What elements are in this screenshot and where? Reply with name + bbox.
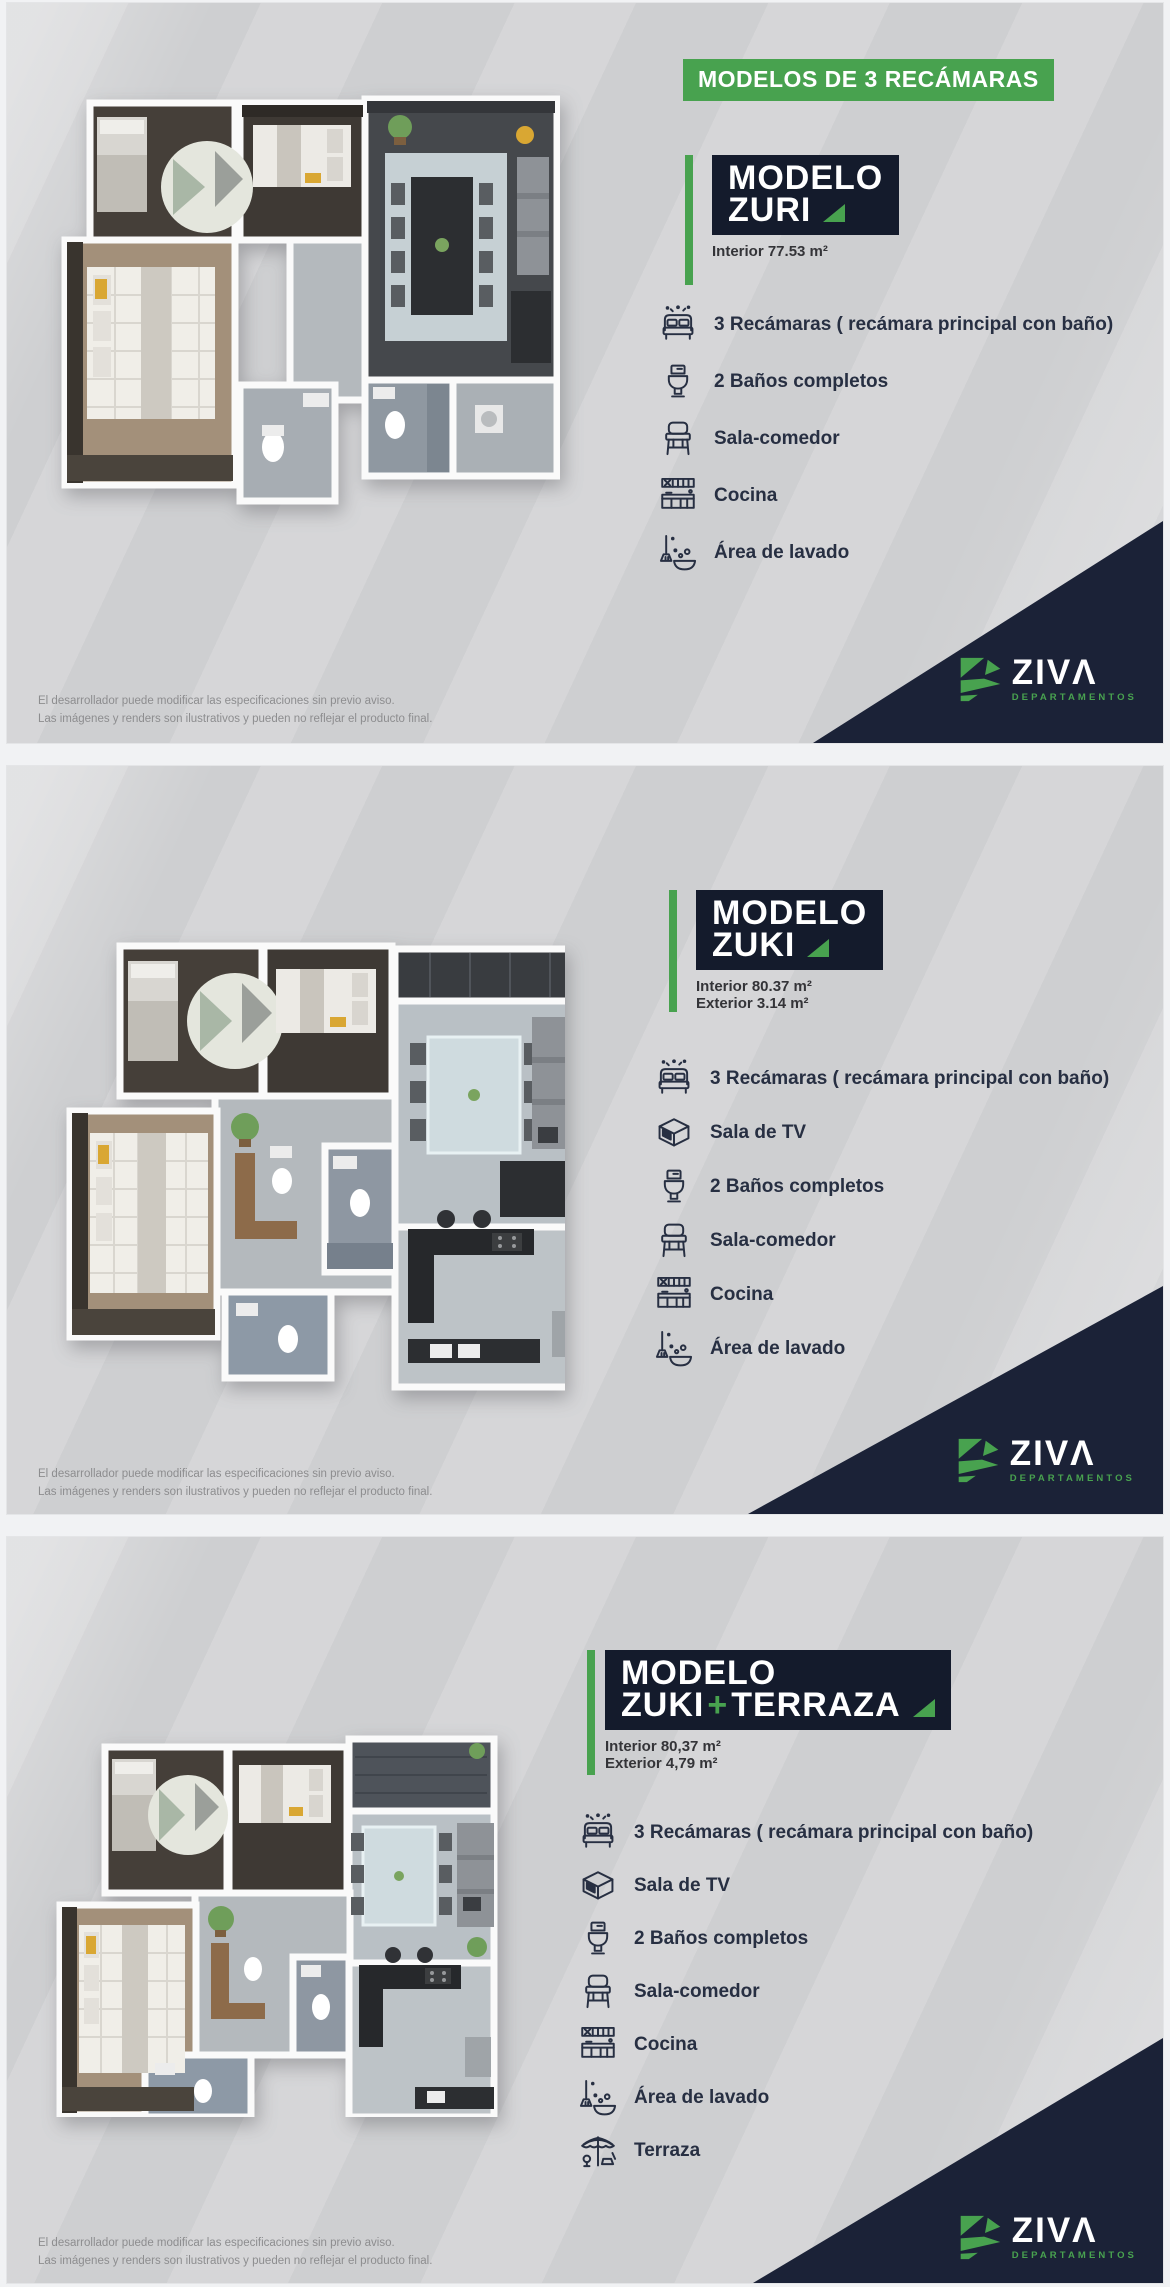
feature-item: Cocina [577,2025,1033,2065]
laundry-icon [657,532,699,574]
model-title-prefix: MODELO [728,162,883,194]
ziva-logo-mark-icon [956,1437,1001,1484]
chair-icon [653,1220,695,1262]
area-exterior: Exterior 4,79 m² [605,1755,951,1772]
model-title-block: MODELO ZUKI Interior 80.37 m² Exterior 3… [669,890,883,1012]
terrace-umbrella-icon [577,2130,619,2172]
feature-item: Sala-comedor [653,1221,1109,1261]
floor-plan-zuki [30,831,565,1401]
area-exterior: Exterior 3.14 m² [696,995,883,1012]
feature-item: 2 Baños completos [653,1167,1109,1207]
chair-icon [657,418,699,460]
ziva-logo-mark-icon [958,2214,1003,2261]
model-title-block: MODELO ZUKI+TERRAZA Interior 80,37 m² Ex… [587,1650,951,1772]
ziva-logo: ZIVΛ DEPARTAMENTOS [958,656,1137,703]
page-title: MODELOS DE 3 RECÁMARAS [683,59,1054,101]
floor-plan-zuki-terraza [25,1647,500,2117]
feature-item: 2 Baños completos [657,360,1113,403]
chair-icon [577,1971,619,2013]
disclaimer-line: Las imágenes y renders son ilustrativos … [38,2253,432,2271]
feature-item: Sala de TV [653,1113,1109,1153]
panel-modelo-zuri: MODELOS DE 3 RECÁMARAS [7,3,1163,743]
feature-label: 2 Baños completos [714,371,888,393]
feature-item: 3 Recámaras ( recámara principal con bañ… [657,303,1113,346]
tv-room-icon [653,1112,695,1154]
model-title-main: ZUKI [712,929,795,961]
feature-item: 2 Baños completos [577,1919,1033,1959]
feature-list: 3 Recámaras ( recámara principal con bañ… [577,1813,1033,2184]
disclaimer-line: El desarrollador puede modificar las esp… [38,2235,432,2253]
feature-label: Cocina [710,1284,773,1306]
model-title-main: ZURI [728,194,811,226]
feature-label: 3 Recámaras ( recámara principal con bañ… [714,314,1113,336]
feature-label: Área de lavado [710,1338,845,1360]
feature-label: 3 Recámaras ( recámara principal con bañ… [634,1822,1033,1844]
disclaimer: El desarrollador puede modificar las esp… [38,2235,432,2270]
feature-item: 3 Recámaras ( recámara principal con bañ… [577,1813,1033,1853]
floor-plan-zuri [55,95,560,505]
disclaimer-line: El desarrollador puede modificar las esp… [38,693,432,711]
feature-item: Sala-comedor [657,417,1113,460]
brand-name: ZIVΛ [1010,1437,1135,1471]
feature-item: Área de lavado [657,531,1113,574]
feature-label: Sala-comedor [714,428,840,450]
kitchen-icon [577,2024,619,2066]
brand-name: ZIVΛ [1012,2214,1137,2248]
panel-modelo-zuki-terraza: MODELO ZUKI+TERRAZA Interior 80,37 m² Ex… [7,1537,1163,2283]
feature-label: Cocina [714,485,777,507]
toilet-icon [577,1918,619,1960]
feature-label: Cocina [634,2034,697,2056]
feature-label: 2 Baños completos [710,1176,884,1198]
kitchen-icon [657,475,699,517]
toilet-icon [653,1166,695,1208]
brand-tagline: DEPARTAMENTOS [1010,1473,1135,1484]
model-title-suffix: TERRAZA [731,1689,900,1721]
brand-tagline: DEPARTAMENTOS [1012,2250,1137,2261]
kitchen-icon [653,1274,695,1316]
feature-label: Área de lavado [634,2087,769,2109]
bed-icon [657,304,699,346]
model-title-block: MODELO ZURI Interior 77.53 m² [685,155,899,260]
area-interior: Interior 80,37 m² [605,1738,951,1755]
feature-label: Terraza [634,2140,700,2162]
feature-list: 3 Recámaras ( recámara principal con bañ… [653,1059,1109,1383]
feature-list: 3 Recámaras ( recámara principal con bañ… [657,303,1113,588]
green-accent-bar [685,155,693,285]
ziva-logo: ZIVΛ DEPARTAMENTOS [956,1437,1135,1484]
flyer-page: MODELOS DE 3 RECÁMARAS [0,0,1170,2287]
green-triangle-icon [823,204,845,222]
feature-item: Sala de TV [577,1866,1033,1906]
bed-icon [653,1058,695,1100]
brand-name: ZIVΛ [1012,656,1137,690]
feature-label: Sala de TV [634,1875,730,1897]
ziva-logo-mark-icon [958,656,1003,703]
disclaimer: El desarrollador puede modificar las esp… [38,693,432,728]
model-title-prefix: MODELO [712,897,867,929]
feature-label: 3 Recámaras ( recámara principal con bañ… [710,1068,1109,1090]
feature-label: Área de lavado [714,542,849,564]
model-title-main: ZUKI [621,1689,704,1721]
feature-item: Cocina [653,1275,1109,1315]
model-title-prefix: MODELO [621,1657,935,1689]
feature-item: Cocina [657,474,1113,517]
disclaimer-line: Las imágenes y renders son ilustrativos … [38,1484,432,1502]
feature-label: Sala-comedor [710,1230,836,1252]
area-interior: Interior 80.37 m² [696,978,883,995]
laundry-icon [653,1328,695,1370]
feature-label: Sala-comedor [634,1981,760,2003]
plus-sign: + [704,1689,731,1721]
disclaimer: El desarrollador puede modificar las esp… [38,1466,432,1501]
bed-icon [577,1812,619,1854]
feature-item: Sala-comedor [577,1972,1033,2012]
ziva-logo: ZIVΛ DEPARTAMENTOS [958,2214,1137,2261]
green-accent-bar [669,890,677,1012]
green-accent-bar [587,1650,595,1775]
disclaimer-line: El desarrollador puede modificar las esp… [38,1466,432,1484]
green-triangle-icon [913,1699,935,1717]
feature-item: Área de lavado [577,2078,1033,2118]
toilet-icon [657,361,699,403]
area-interior: Interior 77.53 m² [712,243,899,260]
tv-room-icon [577,1865,619,1907]
disclaimer-line: Las imágenes y renders son ilustrativos … [38,711,432,729]
panel-modelo-zuki: MODELO ZUKI Interior 80.37 m² Exterior 3… [7,766,1163,1514]
laundry-icon [577,2077,619,2119]
green-triangle-icon [807,939,829,957]
feature-item: 3 Recámaras ( recámara principal con bañ… [653,1059,1109,1099]
brand-tagline: DEPARTAMENTOS [1012,692,1137,703]
feature-label: Sala de TV [710,1122,806,1144]
feature-label: 2 Baños completos [634,1928,808,1950]
